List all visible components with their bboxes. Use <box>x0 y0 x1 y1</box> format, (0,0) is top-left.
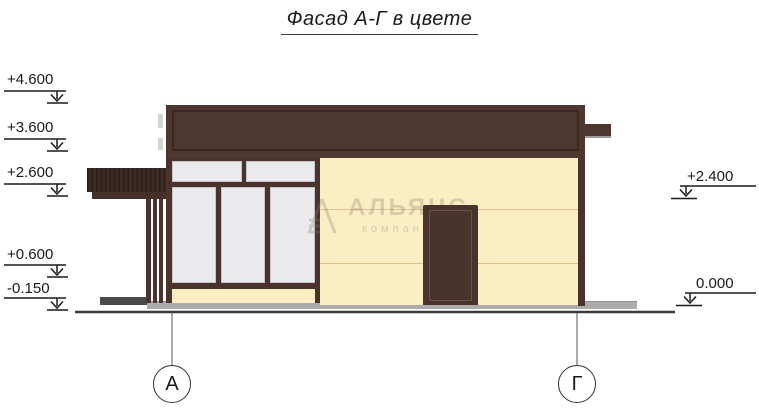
corner-trim <box>578 158 585 306</box>
axis-label: Г <box>572 373 583 396</box>
level-label: +3.600 <box>7 120 53 136</box>
canopy-post <box>153 199 157 303</box>
level-mark-right-0000 <box>676 293 756 306</box>
roof-band <box>166 105 585 158</box>
roof-beam-shadow <box>585 136 611 138</box>
level-mark-right-2400 <box>671 186 756 199</box>
downspout-mark <box>158 138 163 150</box>
facade-drawing: Фасад А-Г в цвете АЛЬЯНС компания <box>0 0 759 418</box>
level-label: +4.600 <box>7 72 53 88</box>
canopy-slats <box>87 168 166 192</box>
spandrel-panel <box>172 289 315 303</box>
level-label: -0.150 <box>7 281 50 297</box>
page-title: Фасад А-Г в цвете <box>281 8 479 35</box>
roof-beam <box>585 124 611 136</box>
canopy-fascia <box>92 192 166 199</box>
roof-trim-line <box>172 110 579 151</box>
watermark-logo-icon <box>306 196 338 236</box>
window-pane <box>172 187 216 283</box>
door-panel <box>429 210 472 301</box>
entrance-door <box>423 205 478 305</box>
level-mark-left-0600 <box>4 265 68 277</box>
window-assembly <box>166 158 320 303</box>
level-mark-left-4600 <box>4 91 68 103</box>
transom-window <box>246 161 315 182</box>
level-label: +2.600 <box>7 165 53 181</box>
canopy-post <box>159 199 163 303</box>
entrance-step <box>100 297 147 305</box>
window-pane <box>221 187 265 283</box>
downspout-mark <box>158 114 163 128</box>
transom-window <box>172 161 242 182</box>
level-mark-left-3600 <box>4 139 68 151</box>
level-mark-left-2600 <box>4 184 68 196</box>
canopy-post <box>146 199 151 303</box>
level-label: 0.000 <box>696 276 734 292</box>
axis-bubble-a: А <box>153 365 191 403</box>
level-label: +2.400 <box>687 169 733 185</box>
level-mark-left-minus0150 <box>4 298 68 310</box>
axis-bubble-g: Г <box>558 365 596 403</box>
level-label: +0.600 <box>7 247 53 263</box>
axis-label: А <box>165 373 178 396</box>
title-wrap: Фасад А-Г в цвете <box>0 8 759 35</box>
